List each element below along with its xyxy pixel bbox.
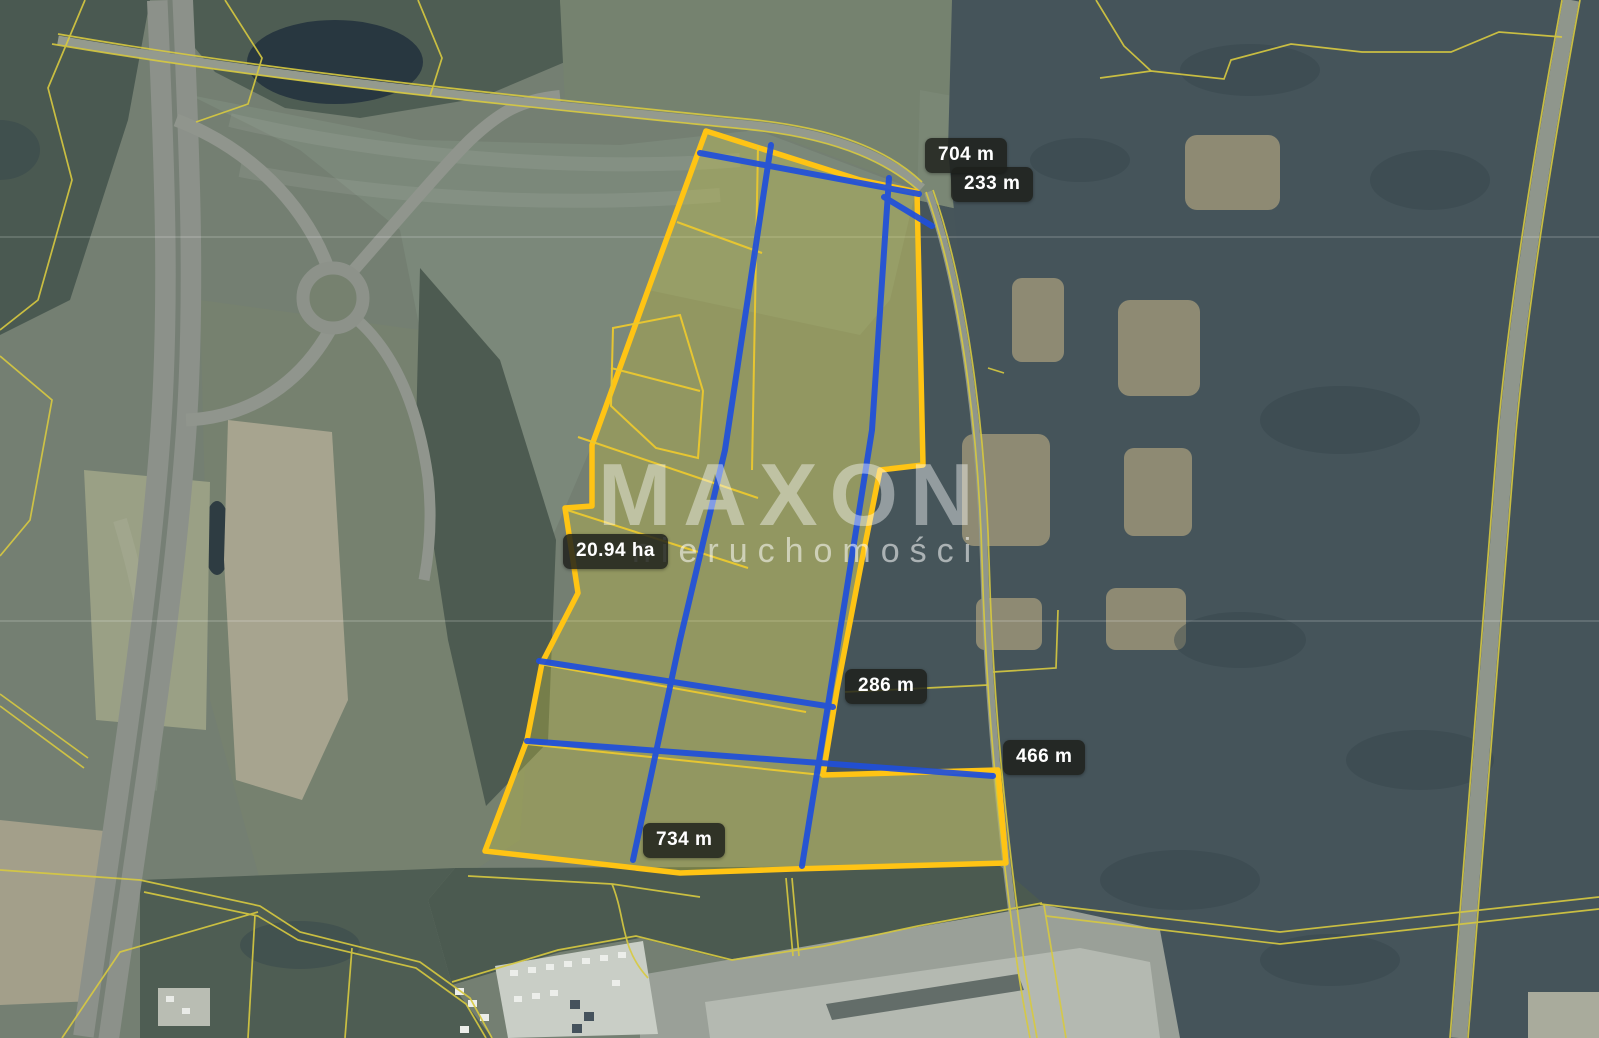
measurement-label-south: 734 m (643, 823, 725, 858)
measurement-label-east: 286 m (845, 669, 927, 704)
parcel-area-label: 20.94 ha (563, 534, 668, 569)
measurement-label-north: 704 m (925, 138, 1007, 173)
satellite-map-canvas[interactable]: MAXON nieruchomości 704 m 233 m 20.94 ha… (0, 0, 1599, 1038)
map-image (0, 0, 1599, 1038)
roundabout (303, 268, 363, 328)
measurement-label-southeast: 466 m (1003, 740, 1085, 775)
